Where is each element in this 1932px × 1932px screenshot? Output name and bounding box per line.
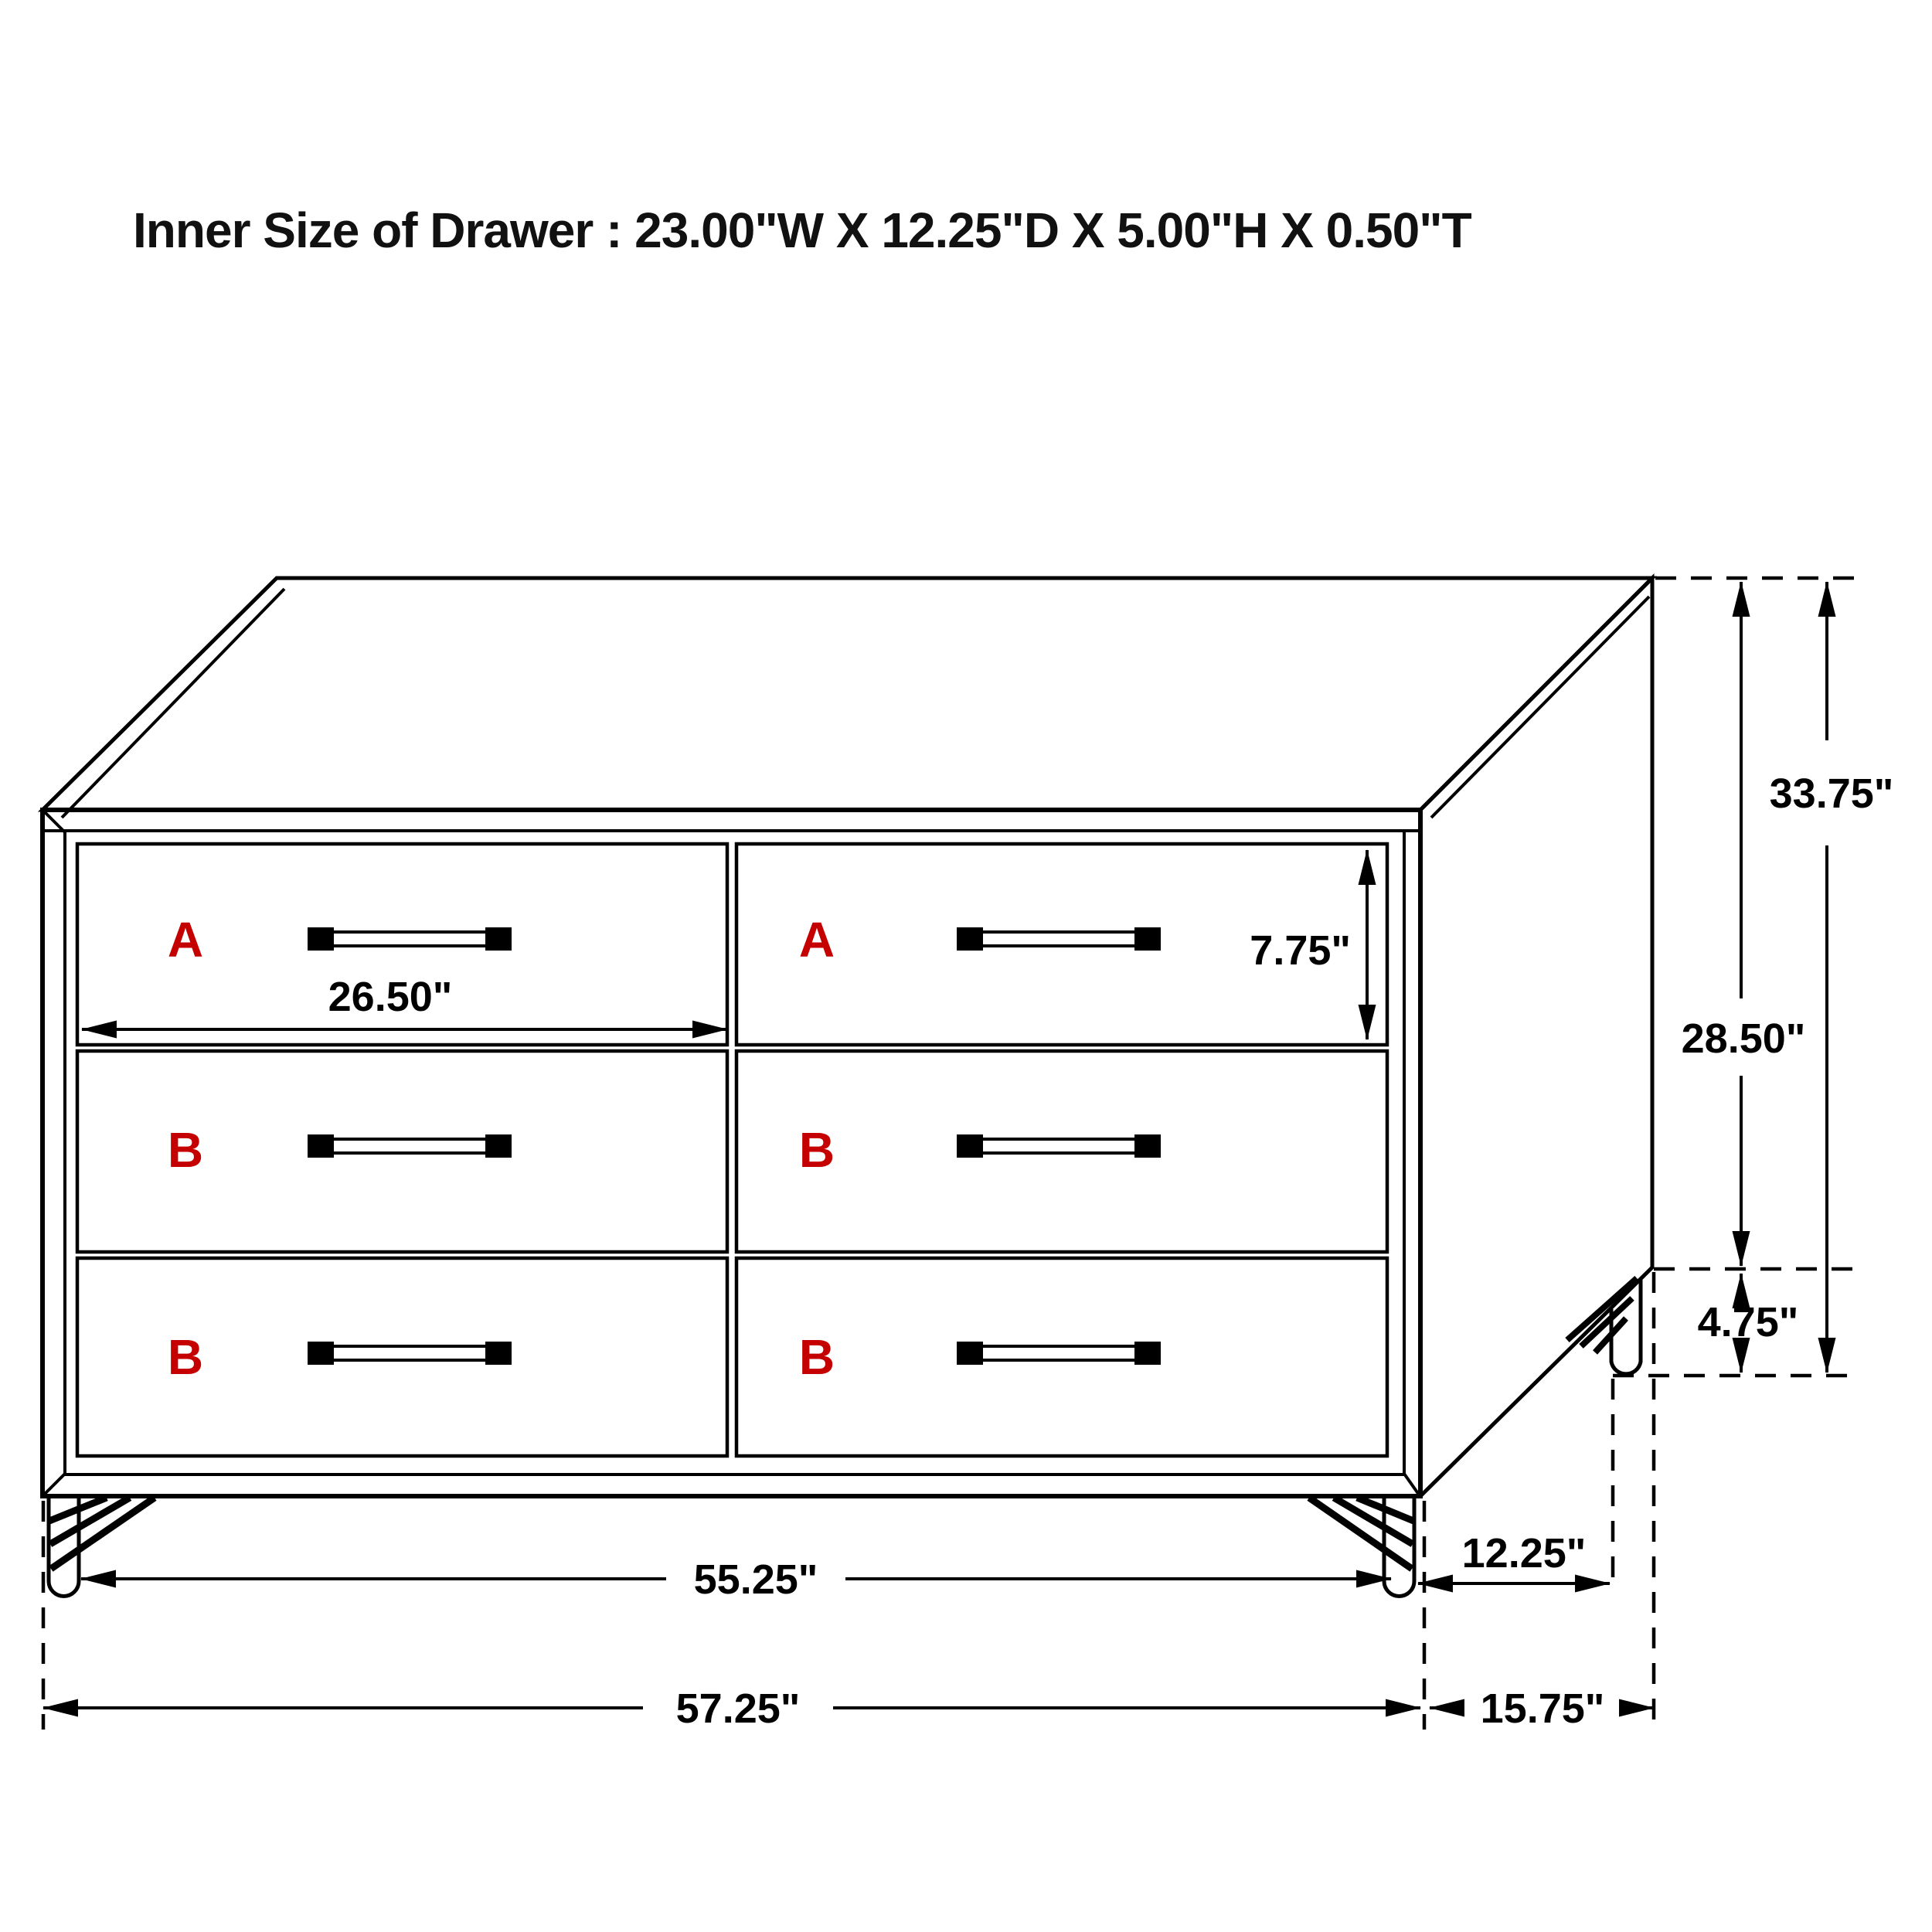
- dresser-dimension-diagram: Inner Size of Drawer : 23.00"W X 12.25"D…: [0, 0, 1932, 1932]
- bevel-bottom-left: [44, 1474, 65, 1495]
- dim-label: 28.50": [1682, 1015, 1806, 1062]
- dim-label: 4.75": [1698, 1299, 1799, 1345]
- dim-drawer-face-width: 26.50": [82, 974, 727, 1029]
- dim-leg-height: 4.75": [1698, 1274, 1799, 1372]
- front-face-frame: [65, 831, 1404, 1475]
- dim-case-height: 28.50": [1682, 582, 1806, 1266]
- front-right-leg: [1309, 1498, 1414, 1597]
- bevel-bottom-right: [1404, 1474, 1419, 1495]
- front-left-leg: [49, 1498, 155, 1597]
- drawer-letter: B: [168, 1122, 203, 1178]
- drawer-letter: B: [799, 1122, 835, 1178]
- diagram-canvas: Inner Size of Drawer : 23.00"W X 12.25"D…: [0, 0, 1932, 1932]
- dim-drawer-face-height: 7.75": [1250, 850, 1367, 1039]
- drawer-grid: [77, 844, 1387, 1456]
- dim-total-width: 57.25": [43, 1685, 1420, 1732]
- side-face: [1420, 578, 1652, 1496]
- handle-middle-right: [957, 1134, 1161, 1158]
- drawer-letter: A: [168, 912, 203, 968]
- side-face-inner-edge: [1431, 597, 1649, 818]
- handle-middle-left: [308, 1134, 512, 1158]
- handle-bottom-left: [308, 1342, 512, 1365]
- drawer-letter: B: [168, 1329, 203, 1385]
- rear-right-leg: [1567, 1278, 1641, 1374]
- handle-bottom-right: [957, 1342, 1161, 1365]
- top-face: [43, 578, 1652, 810]
- dim-label: 15.75": [1481, 1685, 1605, 1732]
- dim-label: 12.25": [1462, 1530, 1587, 1577]
- dim-label: 57.25": [676, 1685, 801, 1732]
- dim-leg-span-width: 55.25": [81, 1556, 1391, 1603]
- dim-label: 26.50": [328, 974, 453, 1020]
- handle-top-left: [308, 927, 512, 951]
- drawer-letter: B: [799, 1329, 835, 1385]
- dim-total-depth: 15.75": [1430, 1685, 1654, 1732]
- dim-label: 7.75": [1250, 927, 1351, 974]
- dim-label: 55.25": [694, 1556, 818, 1603]
- dim-label: 33.75": [1770, 770, 1894, 817]
- dim-total-height: 33.75": [1770, 582, 1894, 1372]
- dim-leg-span-depth: 12.25": [1418, 1530, 1610, 1583]
- diagram-title: Inner Size of Drawer : 23.00"W X 12.25"D…: [133, 202, 1472, 258]
- top-face-inner-edge-left: [62, 589, 284, 818]
- bevel-top-left: [44, 811, 65, 832]
- drawer-letter: A: [799, 912, 835, 968]
- cabinet-outline: [43, 578, 1652, 1496]
- handle-top-right: [957, 927, 1161, 951]
- front-face-outer: [43, 810, 1420, 1496]
